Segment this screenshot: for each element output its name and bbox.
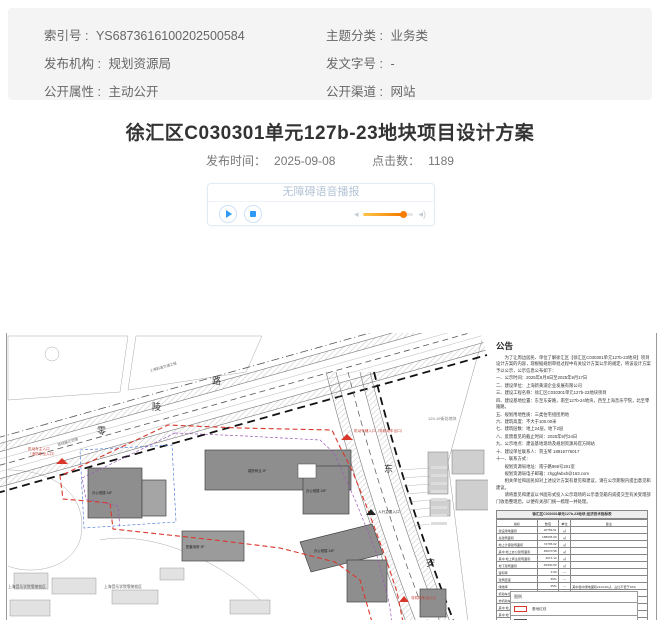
- indicator-unit: ㎡: [559, 548, 571, 555]
- metadata-label: 公开属性 :: [44, 85, 101, 99]
- indicator-value: 188935.00: [537, 534, 558, 541]
- indicator-name: 地上计容建筑面积: [497, 541, 538, 548]
- announcement-line: 四、建设基地位置：东至东安路，南至127b-24地块，西至上海音乐学院，北至零陵…: [496, 398, 651, 411]
- table-row: 地下建筑面积 81930.00 ㎡: [497, 562, 648, 569]
- legend-box: 图例 基地红线 拟建建筑: [510, 591, 638, 620]
- indicator-unit: —: [559, 576, 571, 583]
- announcement-body: 为了让周边居民、单位了解徐汇区【徐汇区C030301单元127b-23地块】项目…: [496, 355, 651, 505]
- pipeline-label: 管线搬迁范围: [57, 436, 79, 447]
- col-header: 备注: [570, 520, 647, 527]
- indicator-note: [570, 548, 647, 555]
- indicator-name: 建筑密度: [497, 576, 538, 583]
- metadata-label: 公开渠道 :: [326, 85, 383, 99]
- table-row: 其中 地上办公建筑面积 66070.58 ㎡: [497, 548, 648, 555]
- scan-edge-left: [6, 333, 7, 620]
- entrance-aux-label: 机动车辅入口（非机动车出口）: [354, 428, 404, 433]
- entrance-bike-label: 非机动车出入口: [411, 595, 437, 600]
- announcement-line: 二、建设单位：上海新黄浦企业发展有限公司: [496, 383, 651, 389]
- metadata-label: 发布机构 :: [44, 57, 101, 71]
- indicator-unit: ㎡: [559, 562, 571, 569]
- indicator-unit: ㎡: [559, 527, 571, 534]
- table-row: 建筑密度 30% —: [497, 576, 648, 583]
- indicator-note: [570, 562, 647, 569]
- road-name-char: 东: [384, 463, 393, 474]
- metadata-value: 规划资源局: [108, 57, 171, 71]
- entrance-ped-label: 人行主要入口: [378, 509, 400, 514]
- indicator-name: 容积率: [497, 569, 538, 576]
- announcement-line: 十一、联系方式：: [496, 456, 651, 462]
- indicator-value: 20759.61: [537, 527, 558, 534]
- indicator-table-header: 指标 数值 单位 备注: [497, 520, 648, 527]
- metadata-row: 发文字号 : -: [326, 50, 428, 78]
- road-name-char: 路: [212, 375, 221, 386]
- metadata-row: 公开属性 : 主动公开: [44, 78, 245, 106]
- volume-control: ◂ ◂): [354, 210, 426, 218]
- announcement-line: 十、建设单位联系人：贺玉琴 18916776017: [496, 449, 651, 455]
- table-row: 容积率 3.60 —: [497, 569, 648, 576]
- table-row: 建设用地面积 20759.61 ㎡: [497, 527, 648, 534]
- audio-player-controls: ◂ ◂): [208, 202, 434, 225]
- indicator-name: 总建筑面积: [497, 534, 538, 541]
- announcement-panel: 公告 为了让周边居民、单位了解徐汇区【徐汇区C030301单元127b-23地块…: [488, 333, 656, 620]
- metadata-left-column: 索引号 : YS6873616100202500584 发布机构 : 规划资源局…: [44, 22, 245, 106]
- metadata-label: 发文字号 :: [326, 57, 383, 71]
- article-meta: 发布时间：2025-09-08 点击数：1189: [0, 152, 660, 169]
- hits-value: 1189: [428, 154, 454, 168]
- indicator-value: 30%: [537, 576, 558, 583]
- indicator-unit: —: [559, 569, 571, 576]
- legend-row: 拟建建筑: [511, 616, 637, 620]
- indicator-note: 其中集中绿地面积2113.00㎡，占比不低于10%: [570, 583, 647, 590]
- publish-time-value: 2025-09-08: [274, 154, 335, 168]
- metadata-value: 主动公开: [108, 85, 158, 99]
- announcement-title: 公告: [496, 340, 651, 352]
- building-label: 配套用房 3F: [186, 544, 204, 549]
- metadata-label: 索引号 :: [44, 29, 88, 43]
- hits-label: 点击数：: [372, 154, 420, 168]
- play-button[interactable]: [219, 205, 237, 223]
- metadata-row: 发布机构 : 规划资源局: [44, 50, 245, 78]
- announcement-line: 三、建设工程名称：徐汇区C030301单元127b-23地块项目: [496, 390, 651, 396]
- building-label: 裙房商业 2F: [248, 468, 266, 473]
- indicator-note: [570, 576, 647, 583]
- indicator-name: 其中 地上办公建筑面积: [497, 548, 538, 555]
- indicator-note: [570, 527, 647, 534]
- indicator-note: [570, 569, 647, 576]
- indicator-unit: —: [559, 583, 571, 590]
- school-buildings: [10, 568, 270, 616]
- announcement-line: 六、建筑高度：不大于100.00米: [496, 419, 651, 425]
- metadata-value: 网站: [390, 85, 415, 99]
- indicator-table-title: 徐汇区C030301单元127b-23地块 经济技术指标表: [496, 510, 648, 519]
- indicator-note: [570, 541, 647, 548]
- metadata-row: 主题分类 : 业务类: [326, 22, 428, 50]
- indicator-name: 地下建筑面积: [497, 562, 538, 569]
- legend-header: 图例: [511, 592, 637, 603]
- building-block: [420, 589, 446, 617]
- audio-player: 无障碍语音播报 ◂ ◂): [207, 183, 435, 226]
- legend-label: 基地红线: [532, 607, 546, 612]
- building-courtyard: [298, 464, 316, 478]
- legend-row: 基地红线: [511, 603, 637, 616]
- school-label-right: 上海音乐学院零陵校区: [104, 584, 142, 589]
- redline-swatch-icon: [514, 606, 527, 612]
- announcement-line: 八、反馈意见的截止时间：2025年9月24日: [496, 434, 651, 440]
- announcement-line: 五、规划用地性质：三类住宅组团用地: [496, 412, 651, 418]
- block-label: 129-19街坊地块: [428, 415, 456, 421]
- audio-player-title: 无障碍语音播报: [208, 184, 434, 202]
- announcement-line: 请将意见和建议以书面形式投入公示现场的公示意见箱内或提交至有关受理部门收悉整理后…: [496, 492, 651, 505]
- indicator-name: 建设用地面积: [497, 527, 538, 534]
- indicator-value: 81930.00: [537, 562, 558, 569]
- col-header: 单位: [559, 520, 571, 527]
- entrance-main-label2: （消防车出入口）: [28, 451, 57, 456]
- building-label: 办公塔楼 24F: [314, 548, 334, 553]
- building-label: 办公塔楼 24F: [92, 490, 112, 495]
- indicator-value: 66070.58: [537, 548, 558, 555]
- announcement-line: 九、公示地点：建设基地现场及规划资源局官方网站: [496, 441, 651, 447]
- indicator-note: [570, 534, 647, 541]
- indicator-name: 其中 地上商业建筑面积: [497, 555, 538, 562]
- indicator-value: 74795.02: [537, 541, 558, 548]
- announcement-line: 为了让周边居民、单位了解徐汇区【徐汇区C030301单元127b-23地块】项目…: [496, 355, 651, 374]
- building-block: [347, 560, 387, 602]
- metadata-label: 主题分类 :: [326, 29, 383, 43]
- metadata-panel: 索引号 : YS6873616100202500584 发布机构 : 规划资源局…: [8, 8, 652, 100]
- metadata-row: 索引号 : YS6873616100202500584: [44, 22, 245, 50]
- table-row: 总建筑面积 188935.00 ㎡: [497, 534, 648, 541]
- scan-edge-right: [656, 333, 657, 620]
- building-block: [142, 480, 166, 516]
- indicator-unit: ㎡: [559, 555, 571, 562]
- announcement-line: 规划资源局电子邮箱：zhggfwbxh@163.com: [496, 471, 651, 477]
- road-name-char: 零: [97, 426, 106, 436]
- page-title: 徐汇区C030301单元127b-23地块项目设计方案: [0, 118, 660, 145]
- table-row: 绿地率 25% — 其中集中绿地面积2113.00㎡，占比不低于10%: [497, 583, 648, 590]
- indicator-unit: ㎡: [559, 534, 571, 541]
- metadata-right-column: 主题分类 : 业务类 发文字号 : - 公开渠道 : 网站: [326, 22, 428, 106]
- volume-low-icon: ◂: [354, 210, 359, 218]
- school-label-left: 上海音乐学院零陵校区: [8, 584, 46, 589]
- table-row: 地上计容建筑面积 74795.02 ㎡: [497, 541, 648, 548]
- indicator-value: 3.60: [537, 569, 558, 576]
- col-header: 数值: [537, 520, 558, 527]
- stop-icon: [250, 211, 256, 217]
- indicator-value: 25%: [537, 583, 558, 590]
- indicator-note: [570, 555, 647, 562]
- volume-high-icon: ◂): [418, 210, 426, 218]
- indicator-unit: ㎡: [559, 541, 571, 548]
- volume-slider[interactable]: [363, 213, 413, 216]
- volume-slider-knob[interactable]: [400, 211, 407, 218]
- metadata-value: -: [390, 57, 394, 71]
- stop-button[interactable]: [244, 205, 262, 223]
- announcement-line: 相关单位和居民如对上述设计方案有意见和建议，请在公示期限内提出意见和建议。: [496, 478, 651, 491]
- announcement-line: 七、建筑层数：地上24层，地下2层: [496, 426, 651, 432]
- table-row: 其中 地上商业建筑面积 4071.14 ㎡: [497, 555, 648, 562]
- entrance-main-label: 机动车主入口: [28, 446, 50, 451]
- col-header: 指标: [497, 520, 538, 527]
- indicator-name: 绿地率: [497, 583, 538, 590]
- play-icon: [226, 210, 232, 218]
- road-name-char: 陵: [152, 402, 161, 412]
- page: 索引号 : YS6873616100202500584 发布机构 : 规划资源局…: [0, 0, 660, 620]
- publish-time-label: 发布时间：: [206, 154, 266, 168]
- announcement-line: 规划资源局地址：南宁路969号201室: [496, 464, 651, 470]
- metro-label: 上海轨道交通工程: [149, 360, 178, 373]
- indicator-value: 4071.14: [537, 555, 558, 562]
- metadata-row: 公开渠道 : 网站: [326, 78, 428, 106]
- metadata-value: YS6873616100202500584: [96, 29, 245, 43]
- road-name-char: 安: [426, 557, 435, 568]
- building-label: 办公塔楼 24F: [306, 488, 326, 493]
- announcement-line: 一、公示时间：2025年9月8日至2025年9月17日: [496, 375, 651, 381]
- metadata-value: 业务类: [390, 29, 428, 43]
